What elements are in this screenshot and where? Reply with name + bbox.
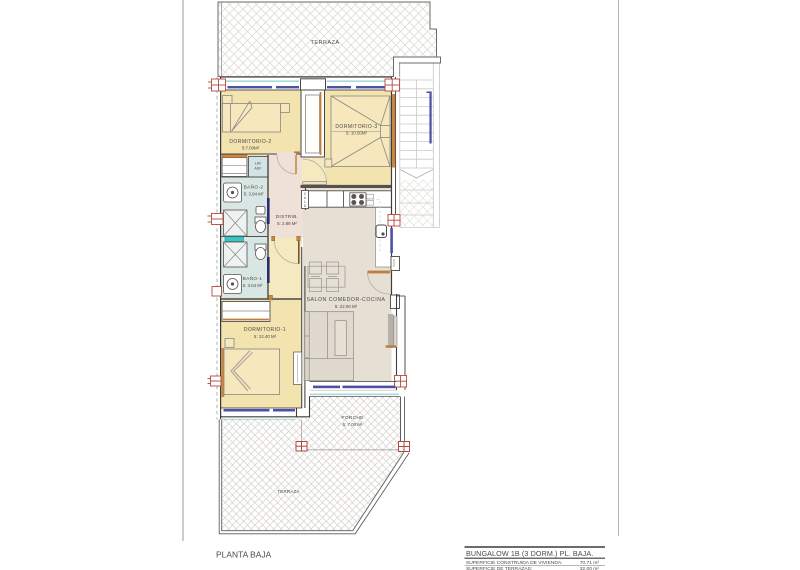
svg-text:LAV: LAV xyxy=(255,162,262,166)
svg-text:32.00 m²: 32.00 m² xyxy=(580,566,600,570)
svg-text:5: 3.94 M²: 5: 3.94 M² xyxy=(244,192,264,197)
svg-text:DORMITORIO-1: DORMITORIO-1 xyxy=(244,327,286,333)
svg-text:PLANTA BAJA: PLANTA BAJA xyxy=(216,550,272,560)
svg-text:PORCHE: PORCHE xyxy=(341,415,363,421)
svg-text:5: 22.00 M²: 5: 22.00 M² xyxy=(335,304,358,309)
svg-text:5: 3.04 M²: 5: 3.04 M² xyxy=(243,283,263,288)
svg-text:TERRAZA: TERRAZA xyxy=(311,40,340,46)
svg-text:5: 12.40 M²: 5: 12.40 M² xyxy=(254,334,277,339)
svg-text:5:7.00M²: 5:7.00M² xyxy=(242,146,260,151)
svg-text:5: 7.00 M²: 5: 7.00 M² xyxy=(343,422,363,427)
svg-text:SUPERFICIE DE TERRAZAS:: SUPERFICIE DE TERRAZAS: xyxy=(466,566,532,570)
svg-text:TERRAZA: TERRAZA xyxy=(277,489,299,494)
svg-text:5: 2.88 M²: 5: 2.88 M² xyxy=(277,221,297,226)
svg-text:ADF: ADF xyxy=(254,167,262,171)
svg-text:BAÑO-2: BAÑO-2 xyxy=(244,184,264,191)
svg-text:SALON COMEDOR-COCINA: SALON COMEDOR-COCINA xyxy=(306,297,385,303)
svg-text:DORMITORIO-3: DORMITORIO-3 xyxy=(335,124,377,130)
svg-text:BAÑO-1: BAÑO-1 xyxy=(243,275,263,282)
svg-text:DORMITORIO-2: DORMITORIO-2 xyxy=(229,139,271,145)
svg-text:5: 10.50M²: 5: 10.50M² xyxy=(346,131,368,136)
svg-text:DISTRIB.: DISTRIB. xyxy=(276,214,299,220)
svg-text:BUNGALOW 1B (3 DORM.) PL. BAJ: BUNGALOW 1B (3 DORM.) PL. BAJA. xyxy=(466,549,593,558)
